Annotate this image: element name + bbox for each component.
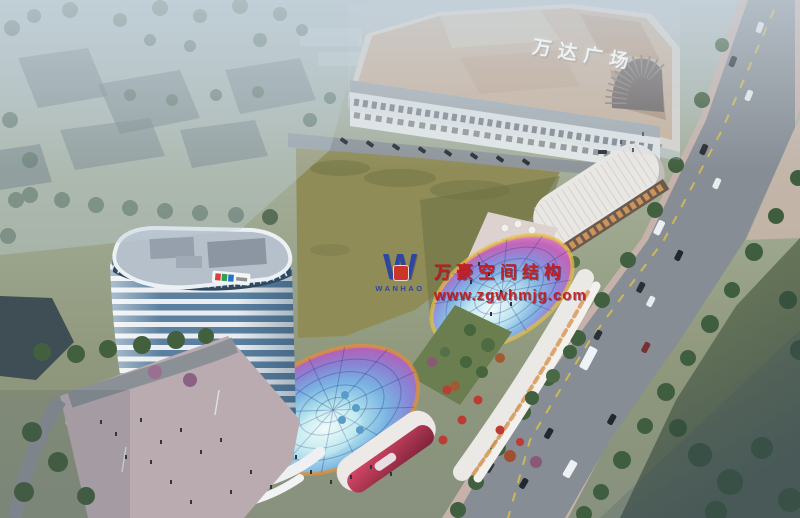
blossom-tree [148,365,162,379]
watermark-logo-badge [393,265,409,281]
aerial-rendering-scene: 万达广场 W WANHAO 万豪空间结构 www.zgwhmjg.com [0,0,800,518]
watermark-website: www.zgwhmjg.com [434,287,587,304]
watermark-company-cn: 万豪空间结构 [434,258,587,283]
watermark-company-en: WANHAO [374,284,426,293]
watermark: W WANHAO 万豪空间结构 www.zgwhmjg.com [374,252,587,304]
watermark-logo: W WANHAO [374,252,426,293]
